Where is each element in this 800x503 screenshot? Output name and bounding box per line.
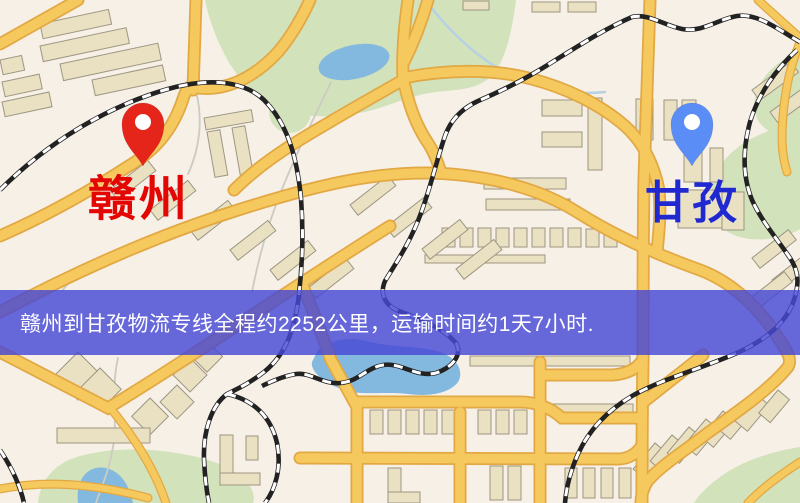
route-info-banner: 赣州到甘孜物流专线全程约2252公里，运输时间约1天7小时.: [0, 290, 800, 355]
map-image: [0, 0, 800, 503]
route-info-text: 赣州到甘孜物流专线全程约2252公里，运输时间约1天7小时.: [20, 308, 594, 338]
destination-label: 甘孜: [645, 180, 739, 225]
origin-label: 赣州: [88, 176, 190, 224]
map-screenshot: 赣州 甘孜 赣州到甘孜物流专线全程约2252公里，运输时间约1天7小时.: [0, 0, 800, 503]
